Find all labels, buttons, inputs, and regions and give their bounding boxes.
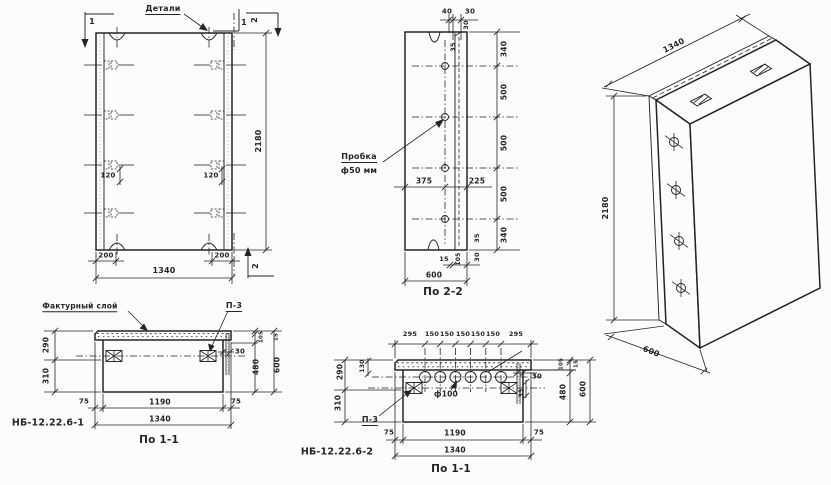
section_1_1_type1-label-p3: П-3 bbox=[226, 302, 242, 312]
section_1_1_type2-dim-295-right: 295 bbox=[509, 331, 523, 338]
section_2_2-dim-35-upper: 35 bbox=[450, 42, 457, 51]
section_1_1_type1-dim-1190: 1190 bbox=[149, 398, 171, 406]
section_2_2-dim-375: 375 bbox=[416, 177, 432, 185]
section_1_1_type2-dim-105: 105 bbox=[559, 358, 565, 370]
section_1_1_type1-label-facing-layer: Фактурный слой bbox=[42, 302, 117, 312]
section_1_1_type1-dim-290: 290 bbox=[42, 337, 50, 353]
section_1_1_type1-dim-15: 15 bbox=[274, 333, 280, 341]
section_1_1_type2-product-mark: НБ-12.22.6-2 bbox=[301, 447, 373, 457]
section_1_1_type2-dim-480: 480 bbox=[559, 384, 567, 400]
front_view-marker-2-top-right: 2 bbox=[251, 17, 259, 23]
front_view-marker-1-top-right: 1 bbox=[241, 19, 247, 27]
section_2_2-dim-105: 105 bbox=[456, 252, 462, 265]
section_1_1_type2-dim-1340: 1340 bbox=[444, 446, 466, 454]
section_1_1_type1-dim-1340: 1340 bbox=[149, 415, 171, 423]
axonometric-dim-depth: 600 bbox=[641, 345, 660, 359]
section_2_2-dim-35-lower: 35 bbox=[474, 233, 481, 242]
section_1_1_type2-dim-75-left: 75 bbox=[384, 430, 394, 437]
section_2_2-label-plug-line1: Пробка bbox=[341, 153, 377, 163]
section_1_1_type2-dim-35: 35 bbox=[519, 389, 525, 398]
section_1_1_type1-dim-310: 310 bbox=[42, 368, 50, 384]
front_view-dim-height: 2180 bbox=[255, 129, 263, 152]
section_1_1_type1-product-mark: НБ-12.22.6-1 bbox=[12, 418, 84, 428]
section_2_2-dim-top-40: 40 bbox=[442, 9, 452, 16]
section_1_1_type2-dim-150-e: 150 bbox=[486, 331, 500, 338]
front_view-label-details: Детали bbox=[145, 5, 180, 15]
section_1_1_type1-dim-75-right: 75 bbox=[231, 399, 241, 406]
section_1_1_type1-dim-480: 480 bbox=[252, 359, 260, 375]
section_1_1_type2-label-p3: П-3 bbox=[362, 416, 378, 426]
section_2_2-dim-600: 600 bbox=[426, 271, 442, 279]
axonometric-dim-width: 1340 bbox=[662, 37, 686, 55]
section_2_2-dim-500-b: 500 bbox=[500, 135, 508, 151]
section_1_1_type2-dim-130: 130 bbox=[360, 359, 366, 372]
front_view-marker-1-top-left: 1 bbox=[89, 18, 95, 26]
drawing-labels: Детали1122218012012020020013404030303534… bbox=[0, 0, 831, 485]
section_2_2-dim-340-top: 340 bbox=[500, 41, 508, 57]
section_2_2-label-plug-line2: ф50 мм bbox=[341, 167, 377, 175]
section_1_1_type1-dim-600: 600 bbox=[273, 357, 281, 373]
axonometric-dim-height: 2180 bbox=[602, 196, 610, 219]
section_2_2-view-title: По 2-2 bbox=[423, 287, 463, 298]
section_1_1_type2-dim-1190: 1190 bbox=[444, 429, 466, 437]
section_1_1_type1-dim-105: 105 bbox=[259, 331, 265, 343]
front_view-dim-edge-right: 200 bbox=[214, 253, 229, 260]
section_2_2-dim-15: 15 bbox=[439, 256, 448, 263]
section_1_1_type1-dim-30: 30 bbox=[235, 349, 245, 356]
section_2_2-dim-225: 225 bbox=[469, 177, 485, 185]
section_1_1_type2-dim-290: 290 bbox=[336, 364, 344, 380]
section_2_2-dim-top-30: 30 bbox=[465, 9, 475, 16]
front_view-marker-2-bottom-right: 2 bbox=[252, 263, 260, 269]
section_1_1_type2-dim-75-right: 75 bbox=[534, 430, 544, 437]
blueprint-sheet: Детали1122218012012020020013404030303534… bbox=[0, 0, 831, 485]
section_1_1_type1-view-title: По 1-1 bbox=[139, 435, 179, 446]
section_1_1_type2-dim-15: 15 bbox=[574, 360, 580, 368]
section_1_1_type2-dim-150-d: 150 bbox=[471, 331, 485, 338]
front_view-dim-edge-left: 200 bbox=[98, 253, 113, 260]
section_1_1_type2-dim-295-left: 295 bbox=[403, 331, 417, 338]
section_1_1_type2-label-hole-dia: ф100 bbox=[434, 390, 458, 398]
section_2_2-dim-500-a: 500 bbox=[500, 84, 508, 100]
section_1_1_type2-dim-150-a: 150 bbox=[425, 331, 439, 338]
section_1_1_type2-dim-150-c: 150 bbox=[456, 331, 470, 338]
front_view-dim-anchor-right: 120 bbox=[203, 173, 218, 180]
section_1_1_type2-dim-30: 30 bbox=[532, 374, 542, 381]
section_1_1_type2-dim-600: 600 bbox=[579, 381, 587, 397]
section_2_2-dim-30-upper: 30 bbox=[463, 20, 470, 29]
front_view-dim-width: 1340 bbox=[152, 267, 175, 275]
section_1_1_type2-dim-310: 310 bbox=[334, 395, 342, 411]
section_1_1_type2-dim-150-b: 150 bbox=[440, 331, 454, 338]
section_1_1_type1-dim-75-left: 75 bbox=[79, 399, 89, 406]
section_2_2-dim-340-bottom: 340 bbox=[500, 227, 508, 243]
section_2_2-dim-30-lower: 30 bbox=[474, 252, 481, 261]
front_view-dim-anchor-left: 120 bbox=[100, 173, 115, 180]
section_1_1_type2-view-title: По 1-1 bbox=[431, 464, 471, 475]
section_2_2-dim-500-c: 500 bbox=[500, 186, 508, 202]
